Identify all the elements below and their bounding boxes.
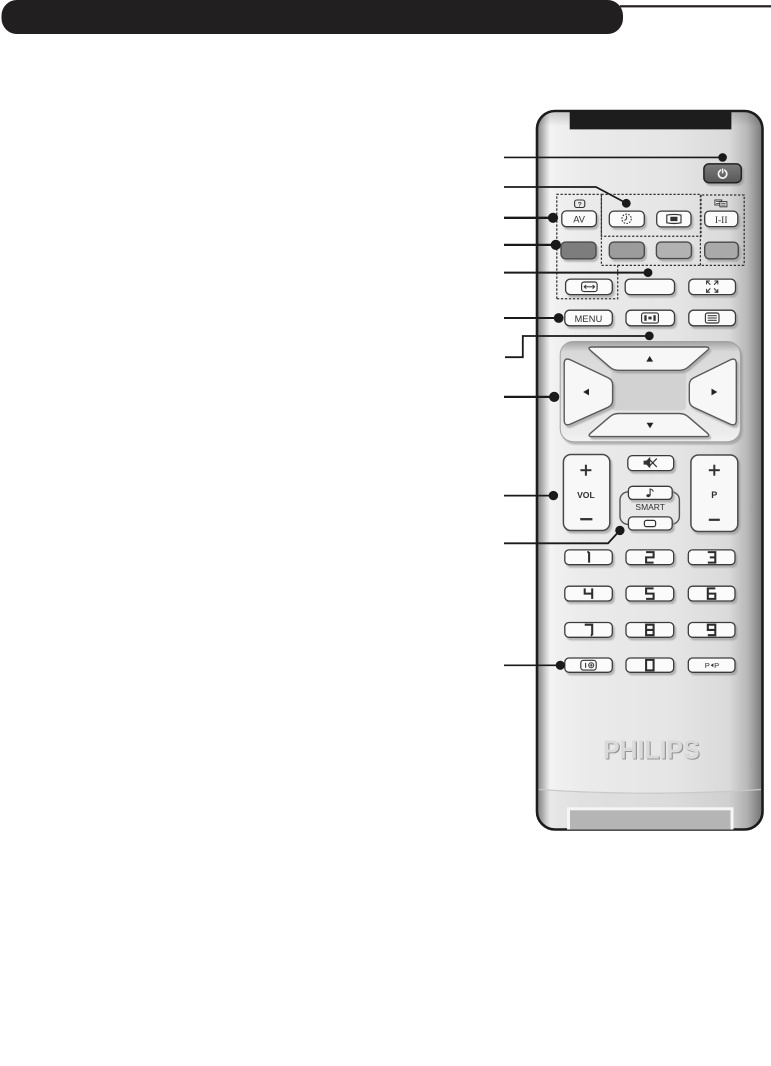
svg-text:I-II: I-II xyxy=(715,216,728,226)
svg-text:SMART: SMART xyxy=(635,503,665,512)
svg-text:P: P xyxy=(705,661,710,670)
svg-text:AV: AV xyxy=(573,215,586,225)
svg-text:MENU: MENU xyxy=(575,314,603,324)
svg-text:?: ? xyxy=(578,201,582,208)
svg-text:VOL: VOL xyxy=(577,490,595,500)
svg-text:P: P xyxy=(714,661,719,670)
svg-text:PHILIPS: PHILIPS xyxy=(603,734,700,764)
svg-text:P: P xyxy=(711,490,717,500)
